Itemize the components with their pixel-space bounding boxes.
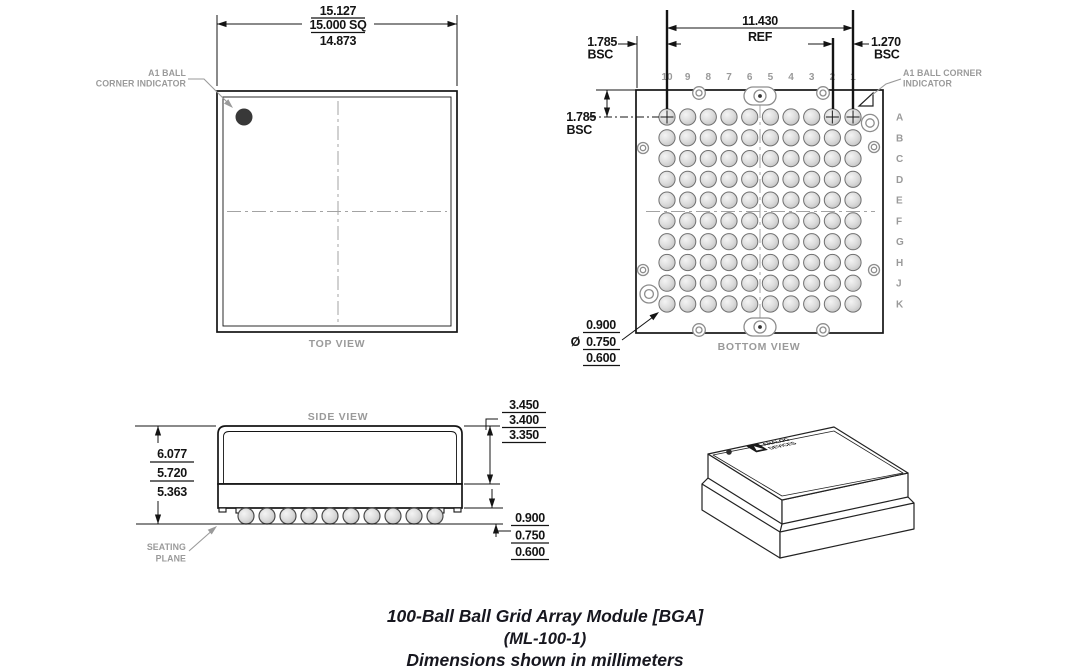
top-width-min: 14.873 xyxy=(320,34,357,48)
col-label-8: 8 xyxy=(706,72,712,83)
ball-D1 xyxy=(845,171,861,187)
row-label-H: H xyxy=(896,258,903,269)
ball-B9 xyxy=(680,130,696,146)
ball-A7 xyxy=(721,109,737,125)
ball-F4 xyxy=(783,213,799,229)
top-width-max: 15.127 xyxy=(320,4,357,18)
ball-G7 xyxy=(721,234,737,250)
ball-B7 xyxy=(721,130,737,146)
bottom-a1-label-1: A1 BALL CORNER xyxy=(903,68,982,78)
ball-D10 xyxy=(659,171,675,187)
ball-B2 xyxy=(824,130,840,146)
lid-max: 3.450 xyxy=(509,398,539,412)
ball-D3 xyxy=(804,171,820,187)
ball-B10 xyxy=(659,130,675,146)
row-label-E: E xyxy=(896,196,903,207)
ball-G6 xyxy=(742,234,758,250)
ball-D5 xyxy=(762,171,778,187)
ball-G4 xyxy=(783,234,799,250)
ball-H10 xyxy=(659,254,675,270)
bottom-view-title: BOTTOM VIEW xyxy=(718,341,801,353)
ball-E7 xyxy=(721,192,737,208)
ball-H6 xyxy=(742,254,758,270)
ball-J5 xyxy=(762,275,778,291)
edge-left-dim-value: 1.785 xyxy=(566,110,596,124)
ball-C2 xyxy=(824,151,840,167)
ball-C8 xyxy=(700,151,716,167)
ball-B6 xyxy=(742,130,758,146)
ball-A3 xyxy=(804,109,820,125)
top-width-nom: 15.000 SQ xyxy=(309,18,367,32)
side-view-base xyxy=(218,484,462,508)
ball-K1 xyxy=(845,296,861,312)
background xyxy=(0,0,1080,672)
caption-model: (ML-100-1) xyxy=(504,630,587,648)
ball-F3 xyxy=(804,213,820,229)
ball-F8 xyxy=(700,213,716,229)
ball-J8 xyxy=(700,275,716,291)
ball-J7 xyxy=(721,275,737,291)
side-view-title: SIDE VIEW xyxy=(308,411,369,423)
side-view-lid xyxy=(218,426,462,484)
row-label-G: G xyxy=(896,237,904,248)
ball-A4 xyxy=(783,109,799,125)
side-ball-2 xyxy=(259,508,275,524)
ball-H2 xyxy=(824,254,840,270)
ball-E4 xyxy=(783,192,799,208)
ball-C4 xyxy=(783,151,799,167)
col-label-4: 4 xyxy=(788,72,794,83)
ball-H4 xyxy=(783,254,799,270)
ball-B4 xyxy=(783,130,799,146)
bga-package-drawing: 15.127 15.000 SQ 14.873 A1 BALL CORNER I… xyxy=(0,0,1080,672)
a1-ball-corner-indicator-dot xyxy=(236,109,253,126)
ball-E10 xyxy=(659,192,675,208)
ball-K10 xyxy=(659,296,675,312)
ball-H1 xyxy=(845,254,861,270)
row-label-J: J xyxy=(896,279,902,290)
ball-C10 xyxy=(659,151,675,167)
ball-C3 xyxy=(804,151,820,167)
iso-pin1-dot xyxy=(726,449,732,455)
ball-dia-min: 0.600 xyxy=(586,351,616,365)
col-label-6: 6 xyxy=(747,72,753,83)
pitch-dim-qualifier: BSC xyxy=(874,48,900,62)
ball-G2 xyxy=(824,234,840,250)
ball-D2 xyxy=(824,171,840,187)
ball-K5 xyxy=(762,296,778,312)
height-nom: 5.720 xyxy=(157,466,187,480)
side-ball-6 xyxy=(343,508,359,524)
row-label-F: F xyxy=(896,216,902,227)
ball-D9 xyxy=(680,171,696,187)
ball-G8 xyxy=(700,234,716,250)
lid-min: 3.350 xyxy=(509,428,539,442)
span-dim-qualifier: REF xyxy=(748,30,773,44)
bottom-a1-label-2: INDICATOR xyxy=(903,79,953,89)
ball-C9 xyxy=(680,151,696,167)
height-min: 5.363 xyxy=(157,485,187,499)
ball-G3 xyxy=(804,234,820,250)
ball-E5 xyxy=(762,192,778,208)
height-max: 6.077 xyxy=(157,447,187,461)
caption-units: Dimensions shown in millimeters xyxy=(406,650,683,670)
lid-nom: 3.400 xyxy=(509,413,539,427)
ball-H7 xyxy=(721,254,737,270)
edge-top-dim-qualifier: BSC xyxy=(588,48,614,62)
ball-A9 xyxy=(680,109,696,125)
ball-J4 xyxy=(783,275,799,291)
ball-C7 xyxy=(721,151,737,167)
diameter-symbol: Ø xyxy=(571,335,581,349)
ball-E6 xyxy=(742,192,758,208)
ball-H9 xyxy=(680,254,696,270)
drawing-canvas: 15.127 15.000 SQ 14.873 A1 BALL CORNER I… xyxy=(0,0,1080,672)
ball-B5 xyxy=(762,130,778,146)
ball-G10 xyxy=(659,234,675,250)
ball-K9 xyxy=(680,296,696,312)
ball-E1 xyxy=(845,192,861,208)
seating-plane-label-1: SEATING xyxy=(147,542,186,552)
col-label-5: 5 xyxy=(768,72,774,83)
ball-J6 xyxy=(742,275,758,291)
side-ball-5 xyxy=(322,508,338,524)
ball-K8 xyxy=(700,296,716,312)
col-label-7: 7 xyxy=(726,72,732,83)
ball-E2 xyxy=(824,192,840,208)
side-ball-8 xyxy=(385,508,401,524)
col-label-3: 3 xyxy=(809,72,815,83)
ball-D8 xyxy=(700,171,716,187)
row-label-C: C xyxy=(896,154,903,165)
standoff-min: 0.600 xyxy=(515,545,545,559)
side-ball-9 xyxy=(406,508,422,524)
row-label-A: A xyxy=(896,113,903,124)
ball-G1 xyxy=(845,234,861,250)
ball-H5 xyxy=(762,254,778,270)
ball-F10 xyxy=(659,213,675,229)
ball-H8 xyxy=(700,254,716,270)
col-label-9: 9 xyxy=(685,72,691,83)
ball-F1 xyxy=(845,213,861,229)
ball-B1 xyxy=(845,130,861,146)
ball-D4 xyxy=(783,171,799,187)
ball-J3 xyxy=(804,275,820,291)
top-a1-label-2: CORNER INDICATOR xyxy=(96,79,187,89)
standoff-nom: 0.750 xyxy=(515,529,545,543)
ball-J2 xyxy=(824,275,840,291)
ball-F5 xyxy=(762,213,778,229)
side-ball-7 xyxy=(364,508,380,524)
ball-H3 xyxy=(804,254,820,270)
ball-J10 xyxy=(659,275,675,291)
ball-K2 xyxy=(824,296,840,312)
ball-B3 xyxy=(804,130,820,146)
ball-E9 xyxy=(680,192,696,208)
row-label-D: D xyxy=(896,175,903,186)
standoff-max: 0.900 xyxy=(515,511,545,525)
side-ball-3 xyxy=(280,508,296,524)
ball-F2 xyxy=(824,213,840,229)
seating-plane-label-2: PLANE xyxy=(156,554,186,564)
ball-F6 xyxy=(742,213,758,229)
ball-K4 xyxy=(783,296,799,312)
side-ball-10 xyxy=(427,508,443,524)
caption-title: 100-Ball Ball Grid Array Module [BGA] xyxy=(387,606,705,626)
ball-G9 xyxy=(680,234,696,250)
ball-K7 xyxy=(721,296,737,312)
ball-E8 xyxy=(700,192,716,208)
edge-left-dim-qualifier: BSC xyxy=(567,123,593,137)
top-view-title: TOP VIEW xyxy=(309,338,366,350)
ball-C6 xyxy=(742,151,758,167)
ball-B8 xyxy=(700,130,716,146)
side-ball-1 xyxy=(238,508,254,524)
ball-D6 xyxy=(742,171,758,187)
ball-A5 xyxy=(762,109,778,125)
ball-K3 xyxy=(804,296,820,312)
ball-J9 xyxy=(680,275,696,291)
ball-C1 xyxy=(845,151,861,167)
ball-F7 xyxy=(721,213,737,229)
top-a1-label-1: A1 BALL xyxy=(148,68,186,78)
ball-dia-nom: 0.750 xyxy=(586,335,616,349)
ball-K6 xyxy=(742,296,758,312)
row-label-B: B xyxy=(896,133,903,144)
ball-G5 xyxy=(762,234,778,250)
ball-J1 xyxy=(845,275,861,291)
row-label-K: K xyxy=(896,300,904,311)
ball-D7 xyxy=(721,171,737,187)
side-ball-4 xyxy=(301,508,317,524)
span-dim-value: 11.430 xyxy=(742,14,778,28)
ball-A6 xyxy=(742,109,758,125)
ball-F9 xyxy=(680,213,696,229)
ball-A8 xyxy=(700,109,716,125)
ball-E3 xyxy=(804,192,820,208)
ball-dia-max: 0.900 xyxy=(586,318,616,332)
ball-C5 xyxy=(762,151,778,167)
